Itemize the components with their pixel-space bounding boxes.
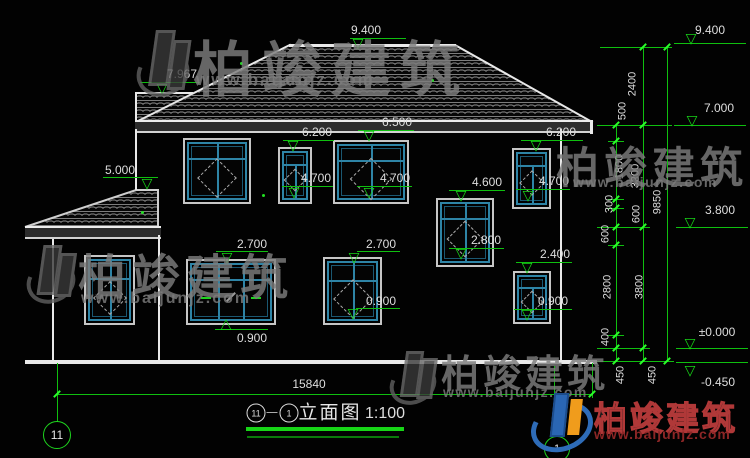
- marker-label-w9-sill: 0.900: [366, 295, 396, 307]
- eave-right-tip: [590, 120, 593, 134]
- watermark-logo: [140, 28, 192, 94]
- dim-line-middle: [643, 47, 644, 362]
- title-axis-b: 1: [286, 408, 291, 418]
- watermark-url: www.baijunjz.com: [81, 290, 251, 308]
- watermark-url: www.baijunjz.com: [196, 70, 375, 90]
- marker-label-w3-sill: 4.700: [380, 172, 410, 184]
- brand-url: www.baijunjz.com: [594, 426, 731, 442]
- axis-circle-left: 11: [43, 421, 71, 449]
- node-dot: [262, 194, 265, 197]
- marker-label-w4-top: 4.600: [472, 176, 502, 188]
- drawing-scale: 1:100: [365, 406, 405, 422]
- level-0000: ±0.000: [699, 326, 736, 338]
- title-axis-a: 11: [251, 408, 260, 418]
- watermark-logo: [30, 243, 76, 299]
- dim-line-outer: [667, 47, 668, 362]
- marker-label-w6-sill: 0.900: [538, 295, 568, 307]
- marker-label-w8-sill: 0.900: [237, 332, 267, 344]
- level-3800: 3.800: [705, 204, 735, 216]
- window-2f-1: [183, 138, 251, 204]
- title-axis-circle-b: 1: [280, 404, 299, 423]
- marker-label-wing: 5.000: [105, 164, 135, 176]
- drawing-title: 立面图: [298, 404, 361, 423]
- title-separator: —: [267, 408, 278, 419]
- node-dot: [141, 211, 144, 214]
- axis-left-label: 11: [51, 428, 63, 442]
- marker-label-w2-sill: 4.700: [301, 172, 331, 184]
- title-axis-circle-a: 11: [247, 404, 266, 423]
- level-7000: 7.000: [704, 102, 734, 114]
- dim-3800: 3800: [635, 275, 646, 299]
- subroof-edge-line: [135, 92, 137, 122]
- dim-600a: 600: [632, 205, 643, 223]
- dim-total-width: 15840: [289, 378, 328, 390]
- brand-logo: [528, 389, 594, 451]
- elevation-drawing-canvas: 9.400 ▽ 7.967 ▽ 5.000 ▽ 6.200 ▽ 6.500 ▽ …: [0, 0, 750, 458]
- dim-450a: 450: [616, 366, 627, 384]
- dim-2400: 2400: [628, 72, 639, 96]
- dim-450b: 450: [648, 366, 659, 384]
- marker-label-w6-top: 2.400: [540, 248, 570, 260]
- watermark-logo: [393, 349, 437, 399]
- level-m450: -0.450: [701, 376, 735, 388]
- dim-500: 500: [618, 102, 629, 120]
- watermark-url: www.baijunjz.com: [573, 174, 718, 190]
- marker-label-w9-top: 2.700: [366, 238, 396, 250]
- marker-label-w2-top: 6.200: [302, 126, 332, 138]
- watermark-brand: 柏竣建筑: [193, 22, 469, 109]
- dim-300: 300: [605, 195, 616, 213]
- dim-600b: 600: [601, 225, 612, 243]
- title-underline-thin: [247, 436, 399, 438]
- upper-left-wall: [135, 129, 137, 190]
- title-underline-thick: [246, 427, 404, 431]
- marker-label-w4-sill: 2.800: [471, 234, 501, 246]
- wing-roof-hatch: [26, 190, 158, 227]
- marker-label-w3-top: 6.500: [382, 116, 412, 128]
- level-9400: 9.400: [695, 24, 725, 36]
- dim-2800: 2800: [603, 275, 614, 299]
- wing-right-edge-line: [157, 189, 159, 227]
